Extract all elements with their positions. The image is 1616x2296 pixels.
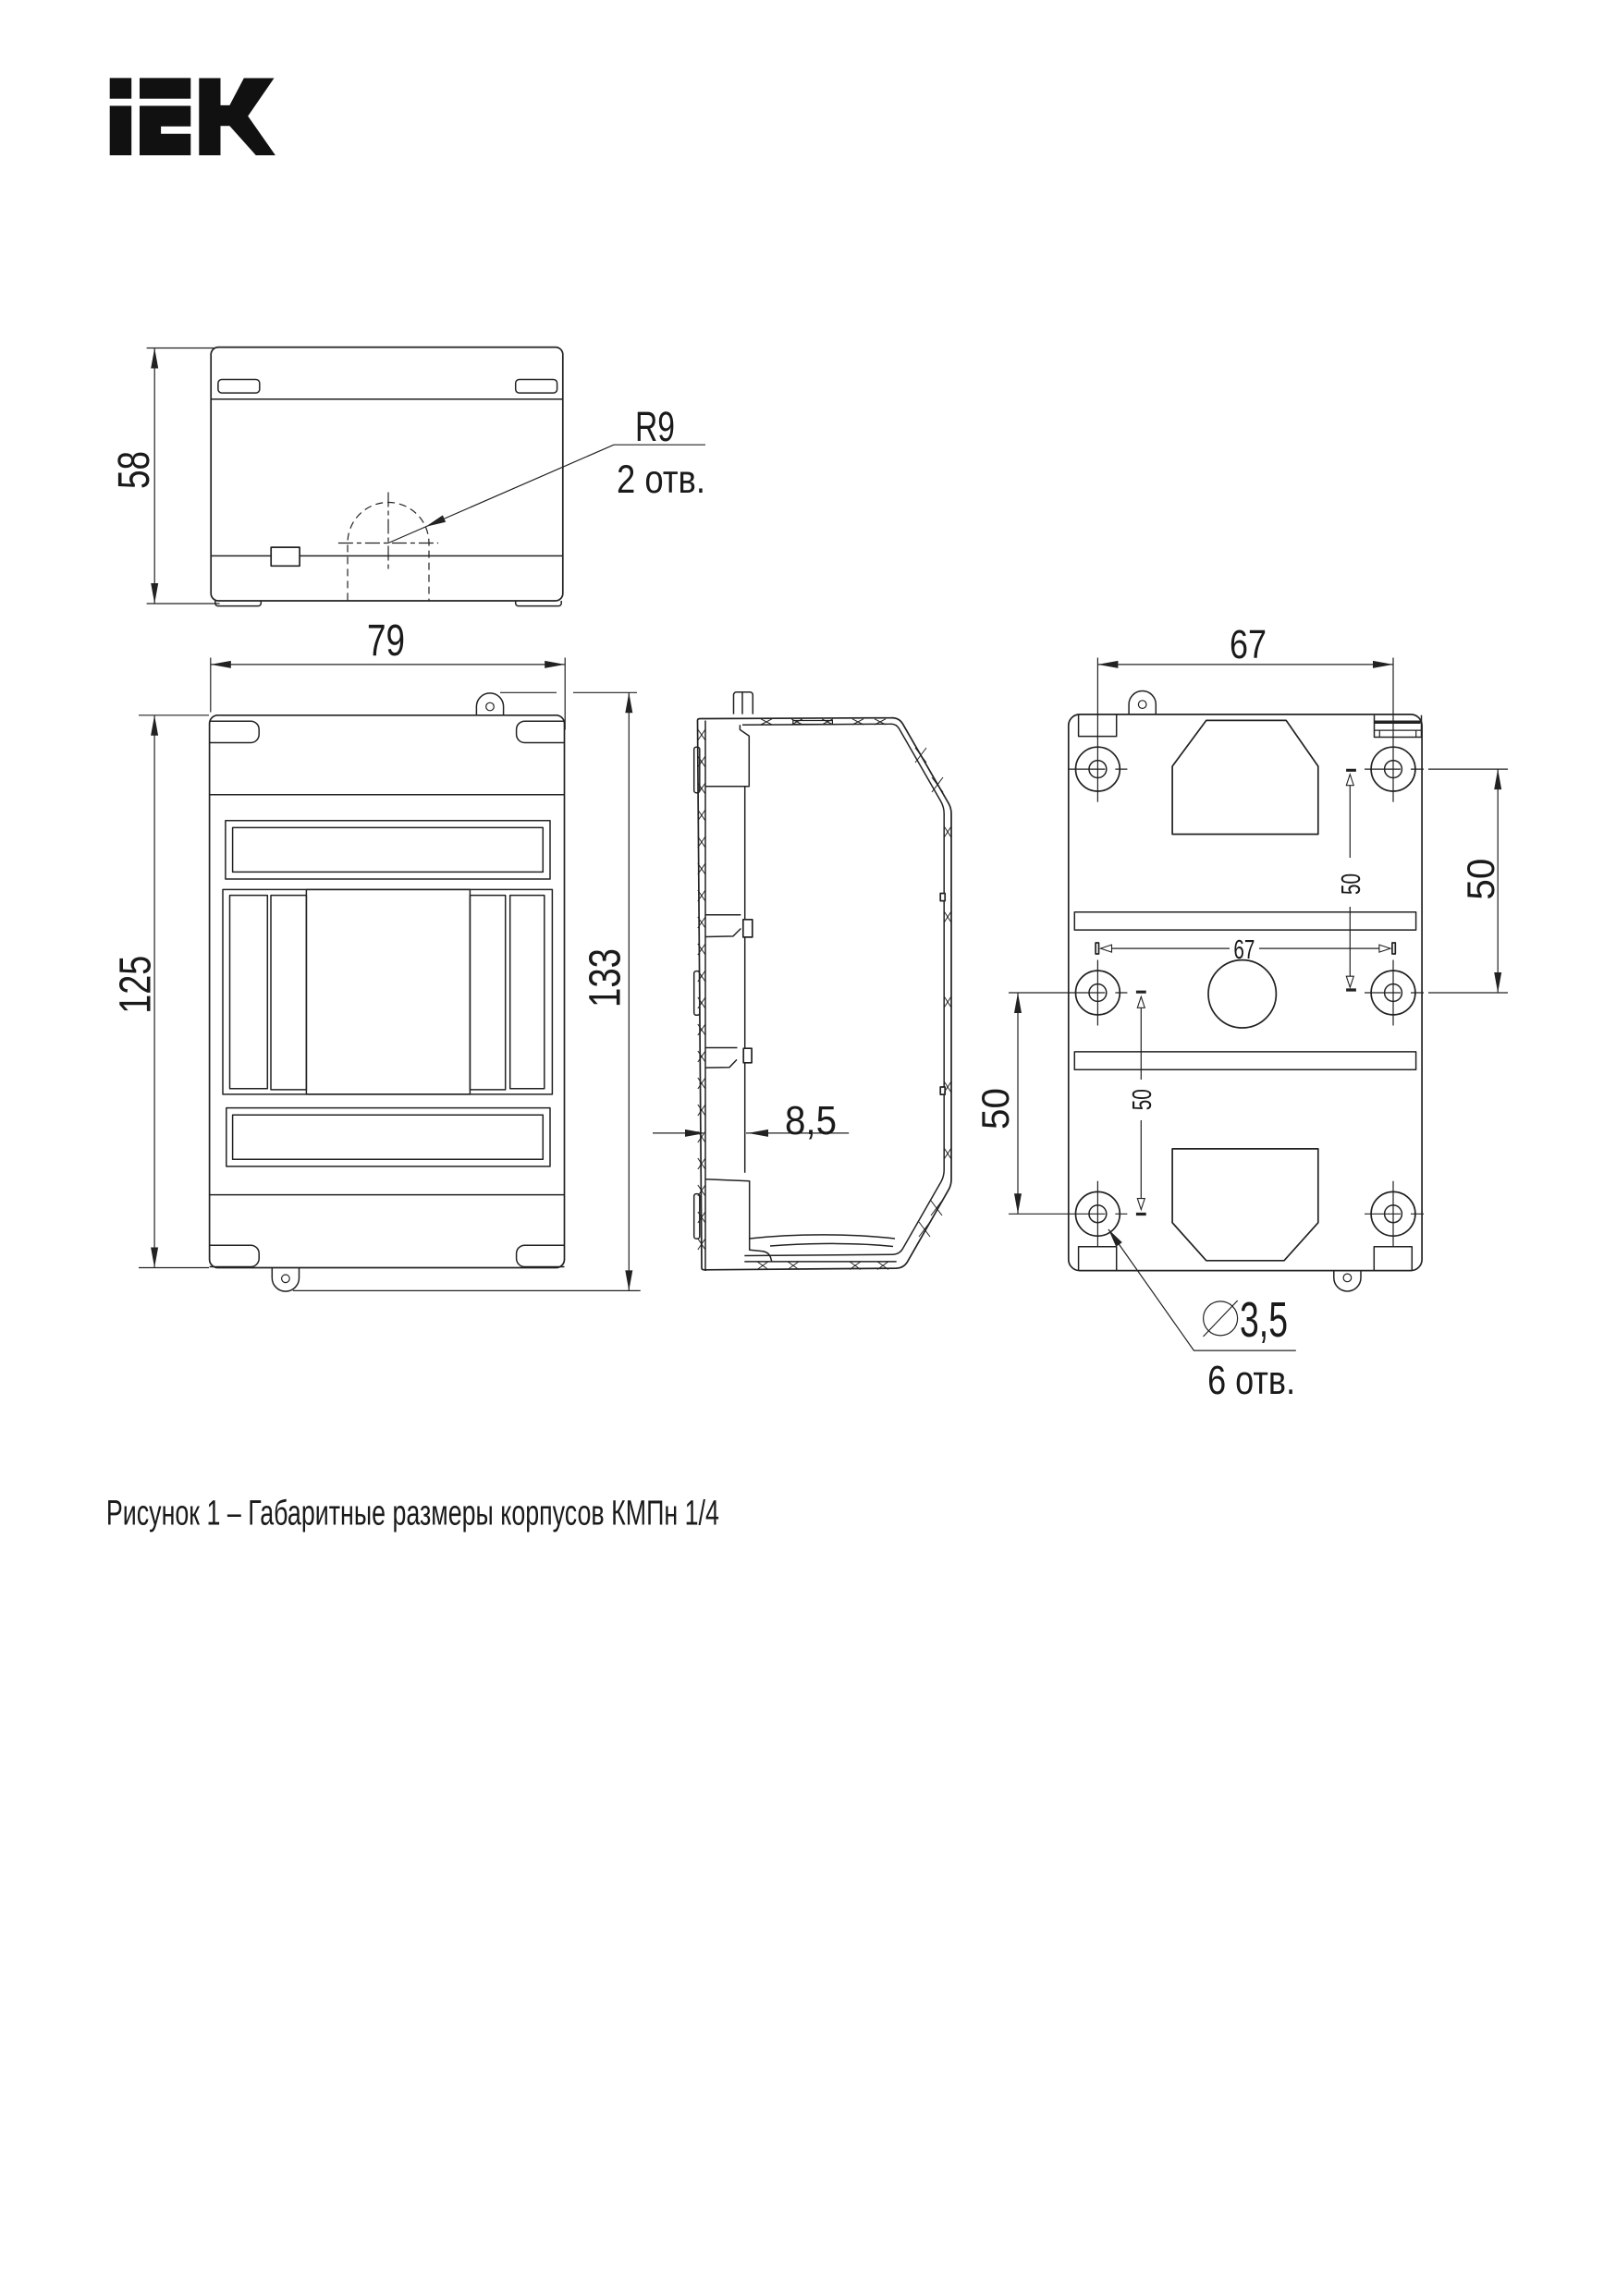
svg-text:67: 67 [1230,622,1267,667]
svg-text:Рисунок 1 – Габаритные размеры: Рисунок 1 – Габаритные размеры корпусов … [106,1495,719,1533]
svg-text:6 отв.: 6 отв. [1207,1358,1295,1403]
svg-text:50: 50 [973,1088,1017,1130]
svg-text:79: 79 [367,617,405,666]
svg-text:50: 50 [1337,873,1366,895]
svg-text:8,5: 8,5 [785,1098,837,1143]
svg-text:133: 133 [581,948,630,1008]
svg-text:50: 50 [1128,1089,1157,1110]
svg-text:125: 125 [111,956,160,1014]
svg-text:R9: R9 [635,403,675,450]
svg-text:50: 50 [1459,859,1502,900]
svg-text:67: 67 [1233,935,1255,965]
svg-text:58: 58 [110,451,159,489]
svg-text:2 отв.: 2 отв. [617,458,705,502]
svg-text:3,5: 3,5 [1240,1292,1288,1348]
